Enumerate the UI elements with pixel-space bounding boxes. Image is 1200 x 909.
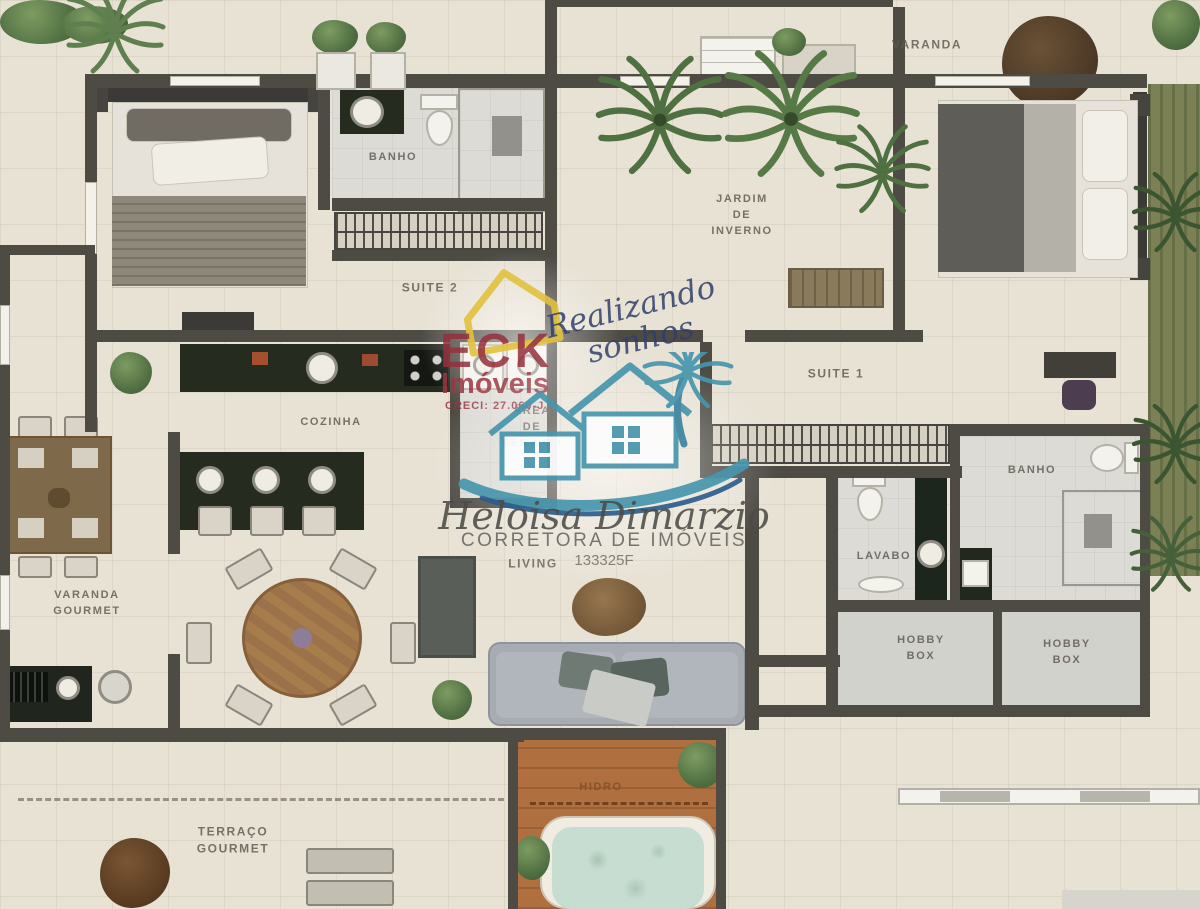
wall (168, 432, 180, 554)
wall (745, 330, 923, 342)
room-label-varanda-gourmet: VARANDA GOURMET (53, 588, 120, 620)
bed-pillow (126, 108, 292, 142)
side-garden-strip (1148, 84, 1200, 576)
house-icon (502, 434, 578, 478)
placemat (72, 518, 98, 538)
wall (332, 198, 545, 211)
counter-item (252, 352, 268, 365)
wall (168, 654, 180, 740)
terrace-bench (306, 848, 394, 874)
wall (826, 600, 1146, 612)
broker-license: 133325F (434, 552, 774, 569)
washbasin (350, 96, 384, 128)
decor-vase (98, 670, 132, 704)
palm-plant-icon (590, 50, 730, 190)
room-label-varanda: VARANDA (892, 36, 962, 53)
bar-stool (308, 466, 336, 494)
bed-suite1-sheet (1024, 104, 1076, 272)
placemat (18, 518, 44, 538)
garden-bench (788, 268, 884, 308)
counter-item (362, 354, 378, 366)
house-icon (570, 366, 690, 414)
window (170, 76, 260, 86)
house-icon (584, 414, 676, 466)
room-label-cozinha: COZINHA (300, 415, 361, 431)
table-centerpiece (292, 628, 312, 648)
toilet-tank (420, 94, 458, 110)
planter-box (370, 52, 406, 90)
bed-pillow (1082, 110, 1128, 182)
palm-plant-icon (830, 120, 935, 225)
island-chair (198, 506, 232, 536)
bar-sink (56, 676, 80, 700)
table-centerpiece (48, 488, 70, 508)
wall (745, 705, 1147, 717)
balcony-edge (557, 0, 893, 7)
shower-fixture (1084, 514, 1112, 548)
bar-stool (252, 466, 280, 494)
dining-chair (224, 683, 273, 727)
planter-box (316, 52, 356, 90)
palm-tree-icon (645, 352, 731, 406)
hot-tub-water (552, 827, 704, 909)
desk-chair (1062, 380, 1096, 410)
vessel-sink (917, 540, 945, 568)
patio-chair (64, 556, 98, 578)
wall (826, 468, 838, 608)
window (0, 575, 10, 630)
room-label-hobby-box-right: HOBBY BOX (1043, 637, 1091, 669)
plant-bush (366, 22, 406, 54)
palm-plant-icon (60, 0, 170, 86)
palm-plant-icon (1128, 400, 1200, 495)
desk (1044, 352, 1116, 378)
dining-chair (186, 622, 212, 664)
wall (318, 88, 330, 210)
palm-plant-icon (1126, 512, 1200, 602)
wall (516, 728, 726, 740)
toilet-bowl (1090, 444, 1124, 472)
window (85, 182, 97, 254)
lavabo-counter (915, 468, 947, 608)
broker-title: CORRETORA DE IMÓVEIS (434, 530, 774, 552)
room-label-terraco-gourmet: TERRAÇO GOURMET (197, 824, 270, 859)
washbasin (962, 560, 989, 587)
glass-wall-segment (940, 791, 1010, 802)
placemat (72, 448, 98, 468)
placemat (18, 448, 44, 468)
projection-line (18, 798, 504, 801)
plant-bush (432, 680, 472, 720)
decor-stone (1002, 16, 1098, 108)
bed-suite1-blanket (938, 104, 1028, 272)
terrace-pad (1062, 890, 1200, 909)
floor-plan: VARANDA BANHO SUITE 2 JARDIM DE INVERNO … (0, 0, 1200, 909)
room-label-lavabo: LAVABO (857, 549, 911, 565)
island-chair (250, 506, 284, 536)
shower-fixture (492, 116, 522, 156)
room-label-hidro: HIDRO (579, 780, 622, 796)
patio-chair (18, 556, 52, 578)
room-label-suite1: SUITE 1 (808, 365, 865, 382)
wall (993, 612, 1002, 705)
dining-chair (328, 683, 377, 727)
dresser (182, 312, 254, 330)
room-label-banho-suite2: BANHO (369, 150, 417, 166)
kitchen-sink (306, 352, 338, 384)
bed-pillow (151, 136, 270, 186)
island-chair (302, 506, 336, 536)
plant-bush (110, 352, 152, 394)
palm-plant-icon (1128, 168, 1200, 263)
wall (826, 612, 838, 717)
patio-chair (18, 416, 52, 438)
room-label-hobby-box-left: HOBBY BOX (897, 633, 945, 665)
grill (6, 672, 48, 702)
glass-wall-segment (1080, 791, 1150, 802)
plant-bush (312, 20, 358, 54)
projection-line (530, 802, 708, 805)
room-label-jardim-inverno: JARDIM DE INVERNO (711, 192, 772, 240)
bed-pillow (1082, 188, 1128, 260)
wall (716, 740, 726, 909)
wardrobe-suite2 (334, 212, 543, 250)
coffee-table (572, 578, 646, 636)
window (935, 76, 1030, 86)
dining-chair (328, 547, 377, 591)
bar-stool (196, 466, 224, 494)
wall (950, 424, 1146, 436)
decor-stone (100, 838, 170, 908)
wall (0, 245, 95, 255)
terrace-bench (306, 880, 394, 906)
dining-chair (224, 547, 273, 591)
wall (0, 728, 524, 742)
bed-suite2-headboard (108, 86, 310, 102)
window (0, 305, 10, 365)
wall (950, 436, 960, 602)
bed-suite2-blanket (112, 196, 306, 286)
towel-tray (858, 576, 904, 593)
wall (508, 740, 518, 909)
room-label-banho-suite1: BANHO (1008, 463, 1056, 479)
dining-chair (390, 622, 416, 664)
plant-bush (1152, 0, 1200, 50)
